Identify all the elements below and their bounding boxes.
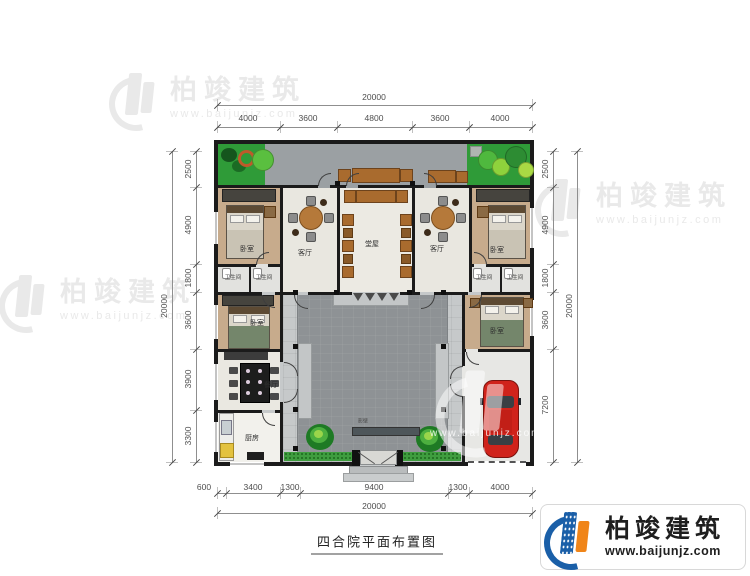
floor-plan-sheet: 柏竣建筑 www.baijunjz.com 柏竣建筑 www.baijunjz.… (0, 0, 750, 576)
chair (456, 213, 466, 223)
column (410, 181, 415, 186)
car (483, 380, 519, 458)
side-table (401, 254, 411, 264)
window (230, 462, 264, 466)
room-label-bedroom-ml: 卧室 (250, 318, 264, 328)
sideboard (224, 352, 268, 360)
brand-name: 柏竣建筑 (605, 516, 725, 542)
bush (424, 432, 433, 440)
sink (221, 420, 232, 435)
brand-website: www.baijunjz.com (605, 544, 725, 558)
car-roof (489, 410, 512, 433)
hall-chair (342, 266, 354, 278)
wall-outer-left (214, 140, 218, 466)
brand-footer: 柏竣建筑 www.baijunjz.com (540, 504, 746, 570)
window (214, 212, 218, 244)
column (407, 290, 412, 295)
nightstand (523, 298, 533, 308)
folding-door-leaf (377, 293, 387, 301)
room-label-bedroom-tr: 卧室 (490, 245, 504, 255)
wall-interior (214, 185, 534, 188)
wall-interior (469, 185, 472, 292)
hall-chair (396, 190, 408, 203)
armchair (452, 199, 459, 206)
room-label-living-right: 客厅 (430, 244, 444, 254)
side-table (401, 228, 411, 238)
nightstand (264, 206, 276, 218)
column (441, 407, 446, 412)
stove (247, 452, 264, 460)
chair (420, 213, 430, 223)
nightstand (477, 206, 489, 218)
column (293, 290, 298, 295)
hall-chair (344, 190, 356, 203)
entry-step (343, 473, 414, 482)
dining-chair (229, 367, 238, 374)
wall-interior (500, 264, 502, 292)
wall-interior (214, 264, 280, 267)
bush (314, 430, 323, 438)
column (441, 446, 446, 451)
floor-plan: 卧室 客厅 堂屋 客厅 卧室 卫生间 卫生间 卫生间 卫生间 卧室 餐厅 厨房 … (0, 0, 750, 576)
room-label-main-hall: 堂屋 (365, 239, 379, 249)
window (530, 208, 534, 248)
hall-chair (342, 240, 354, 252)
wall-interior (412, 185, 415, 292)
hall-chair (342, 214, 354, 226)
column (335, 181, 340, 186)
column (441, 344, 446, 349)
room-label-bedroom-tl: 卧室 (240, 244, 254, 254)
side-table (343, 254, 353, 264)
porch-chair (456, 171, 468, 183)
room-label-kitchen: 厨房 (245, 433, 259, 443)
column (441, 290, 446, 295)
chair (306, 232, 316, 242)
tree (252, 149, 274, 171)
chair (438, 232, 448, 242)
room-label-bath: 卫生间 (256, 273, 273, 281)
dining-chair (229, 393, 238, 400)
folding-door-leaf (365, 293, 375, 301)
folding-door-leaf (353, 293, 363, 301)
column (293, 407, 298, 412)
car-mirror (480, 398, 483, 405)
tree (518, 162, 534, 178)
window (214, 422, 218, 452)
window (214, 305, 218, 339)
brand-logo-icon (547, 509, 597, 565)
car-rear-window (488, 435, 513, 445)
label-screen-wall: 影壁 (358, 418, 368, 425)
folding-door-leaf (389, 293, 399, 301)
dining-chair (270, 367, 279, 374)
armchair (424, 229, 431, 236)
room-label-living-left: 客厅 (298, 248, 312, 258)
wall-interior (249, 264, 251, 292)
wardrobe (476, 189, 530, 202)
dining-chair (270, 393, 279, 400)
car-mirror (518, 398, 521, 405)
window (214, 364, 218, 400)
chair (324, 213, 334, 223)
dining-chair (229, 380, 238, 387)
chair (438, 196, 448, 206)
column (293, 344, 298, 349)
hall-table (356, 190, 396, 203)
round-table (431, 206, 455, 230)
green-strip (403, 452, 461, 461)
kitchen-cabinet (220, 443, 234, 458)
column (293, 446, 298, 451)
armchair (292, 229, 299, 236)
screen-wall (352, 427, 420, 436)
courtyard-step-left (298, 343, 312, 419)
armchair (320, 199, 327, 206)
hall-chair (400, 214, 412, 226)
door-opening (280, 362, 283, 402)
room-label-bedroom-mr: 卧室 (490, 326, 504, 336)
wall-interior (337, 185, 340, 292)
bed (480, 297, 524, 347)
column (334, 290, 339, 295)
chair (306, 196, 316, 206)
wall-outer-top (214, 140, 534, 144)
room-label-dining: 餐厅 (264, 380, 278, 390)
garage-door (468, 461, 526, 466)
room-label-bath: 卫生间 (476, 273, 493, 281)
sheet-title: 四合院平面布置图 (311, 532, 443, 555)
hall-chair (400, 266, 412, 278)
side-table (343, 228, 353, 238)
porch-bench (352, 168, 400, 183)
hall-chair (400, 240, 412, 252)
round-table (299, 206, 323, 230)
wall-interior (280, 185, 283, 462)
room-label-bath: 卫生间 (507, 273, 524, 281)
chair (288, 213, 298, 223)
room-label-bath: 卫生间 (225, 273, 242, 281)
green-strip (284, 452, 352, 461)
car-windshield (487, 396, 514, 408)
wardrobe (222, 189, 276, 202)
